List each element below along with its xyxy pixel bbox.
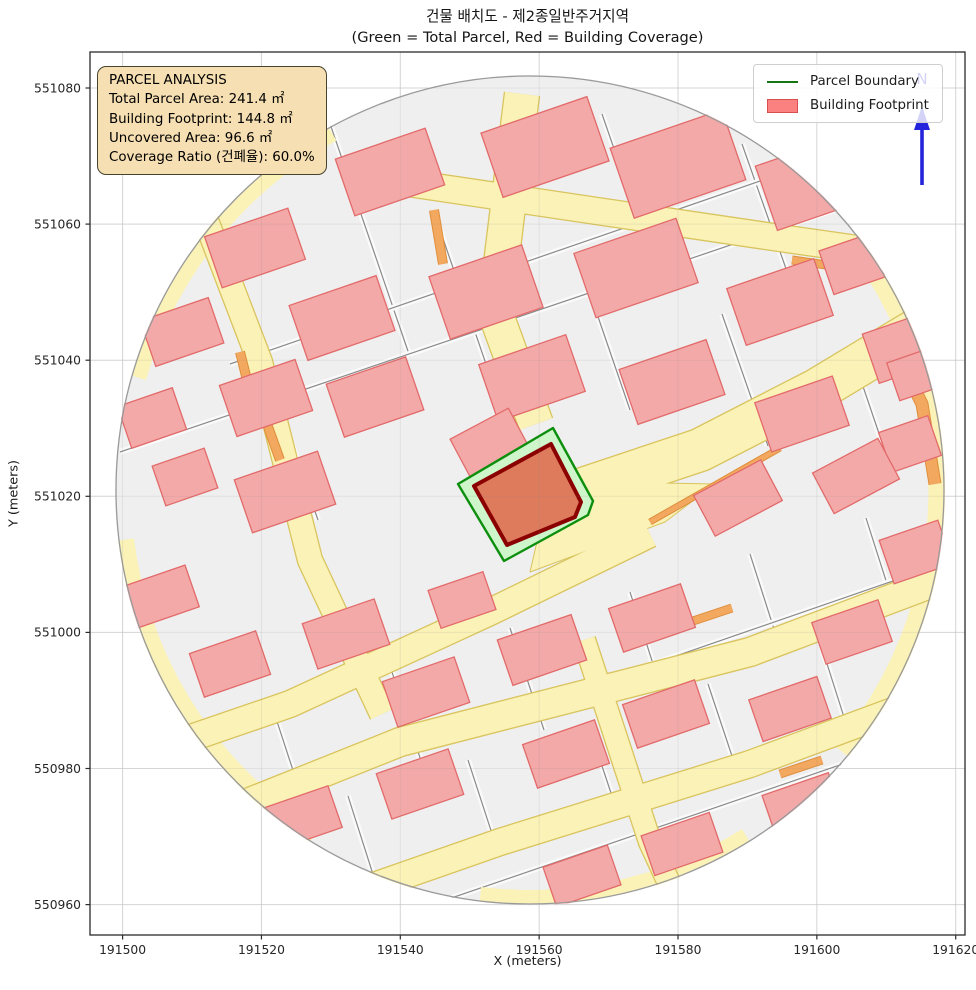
svg-text:550980: 550980 xyxy=(34,762,81,776)
title-line-2: (Green = Total Parcel, Red = Building Co… xyxy=(90,27,965,48)
svg-text:550960: 550960 xyxy=(34,898,81,912)
legend-item-parcel-boundary: Parcel Boundary xyxy=(767,74,929,89)
parcel-analysis-uncovered: Uncovered Area: 96.6 ㎡ xyxy=(109,129,315,148)
legend-label-building-footprint: Building Footprint xyxy=(810,98,929,113)
svg-text:551000: 551000 xyxy=(34,626,81,640)
legend: Parcel Boundary Building Footprint xyxy=(753,64,943,123)
figure: N191500191520191540191560191580191600191… xyxy=(0,0,976,990)
y-axis-label: Y (meters) xyxy=(7,444,22,544)
parcel-boundary-swatch-icon xyxy=(767,81,798,83)
legend-label-parcel-boundary: Parcel Boundary xyxy=(810,74,919,89)
svg-text:551060: 551060 xyxy=(34,217,81,231)
parcel-analysis-coverage: Coverage Ratio (건폐율): 60.0% xyxy=(109,148,315,167)
parcel-analysis-box: PARCEL ANALYSIS Total Parcel Area: 241.4… xyxy=(97,66,327,175)
svg-text:551080: 551080 xyxy=(34,81,81,95)
title-line-1: 건물 배치도 - 제2종일반주거지역 xyxy=(90,6,965,27)
parcel-analysis-total-area: Total Parcel Area: 241.4 ㎡ xyxy=(109,90,315,109)
parcel-analysis-footprint: Building Footprint: 144.8 ㎡ xyxy=(109,110,315,129)
svg-text:551040: 551040 xyxy=(34,354,81,368)
chart-title: 건물 배치도 - 제2종일반주거지역 (Green = Total Parcel… xyxy=(90,6,965,48)
svg-text:551020: 551020 xyxy=(34,490,81,504)
x-axis-label: X (meters) xyxy=(90,954,965,969)
parcel-analysis-title: PARCEL ANALYSIS xyxy=(109,71,315,90)
building-footprint-swatch-icon xyxy=(767,99,798,113)
legend-item-building-footprint: Building Footprint xyxy=(767,98,929,113)
